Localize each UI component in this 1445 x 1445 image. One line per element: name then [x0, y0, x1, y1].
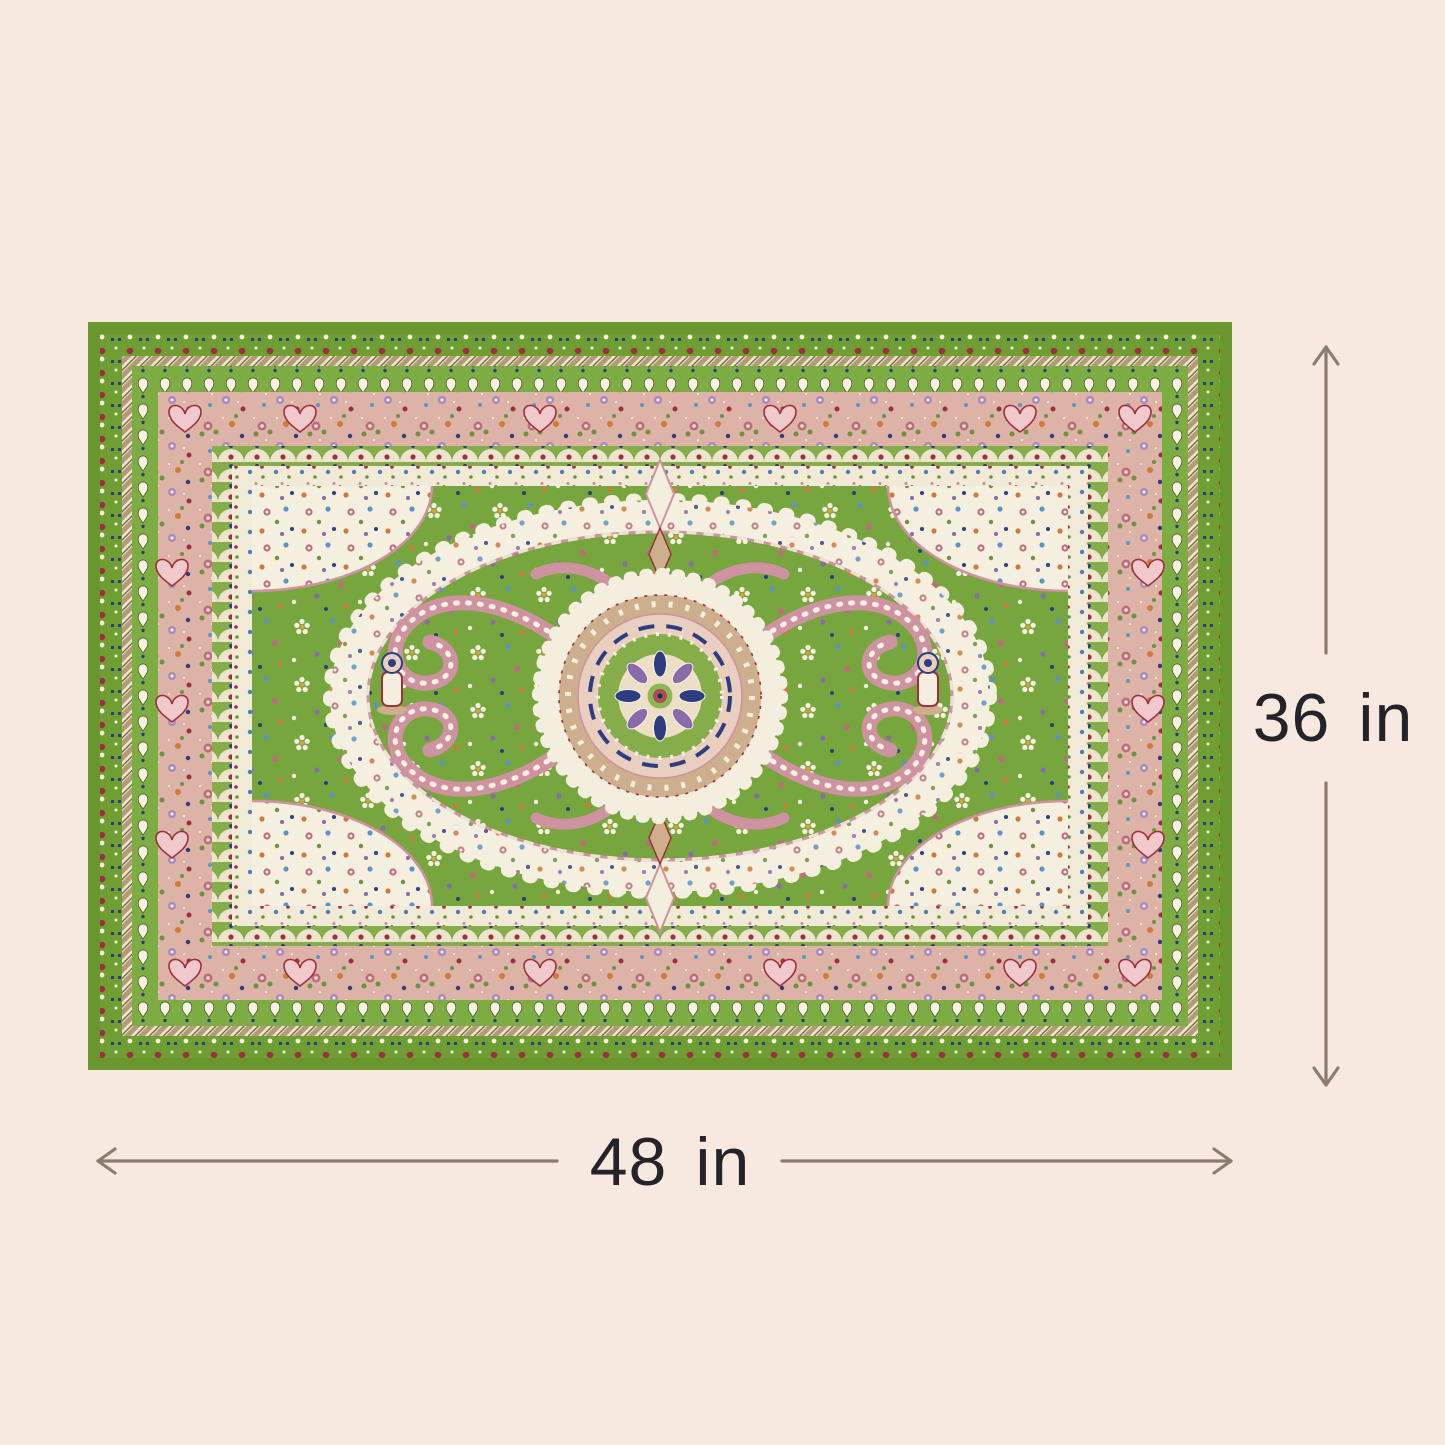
rug-image: [88, 322, 1232, 1070]
height-dimension-label: 36 in: [1223, 678, 1443, 758]
product-dimension-image: 36 in 48 in: [0, 0, 1445, 1445]
width-dimension-label: 48 in: [520, 1122, 820, 1202]
